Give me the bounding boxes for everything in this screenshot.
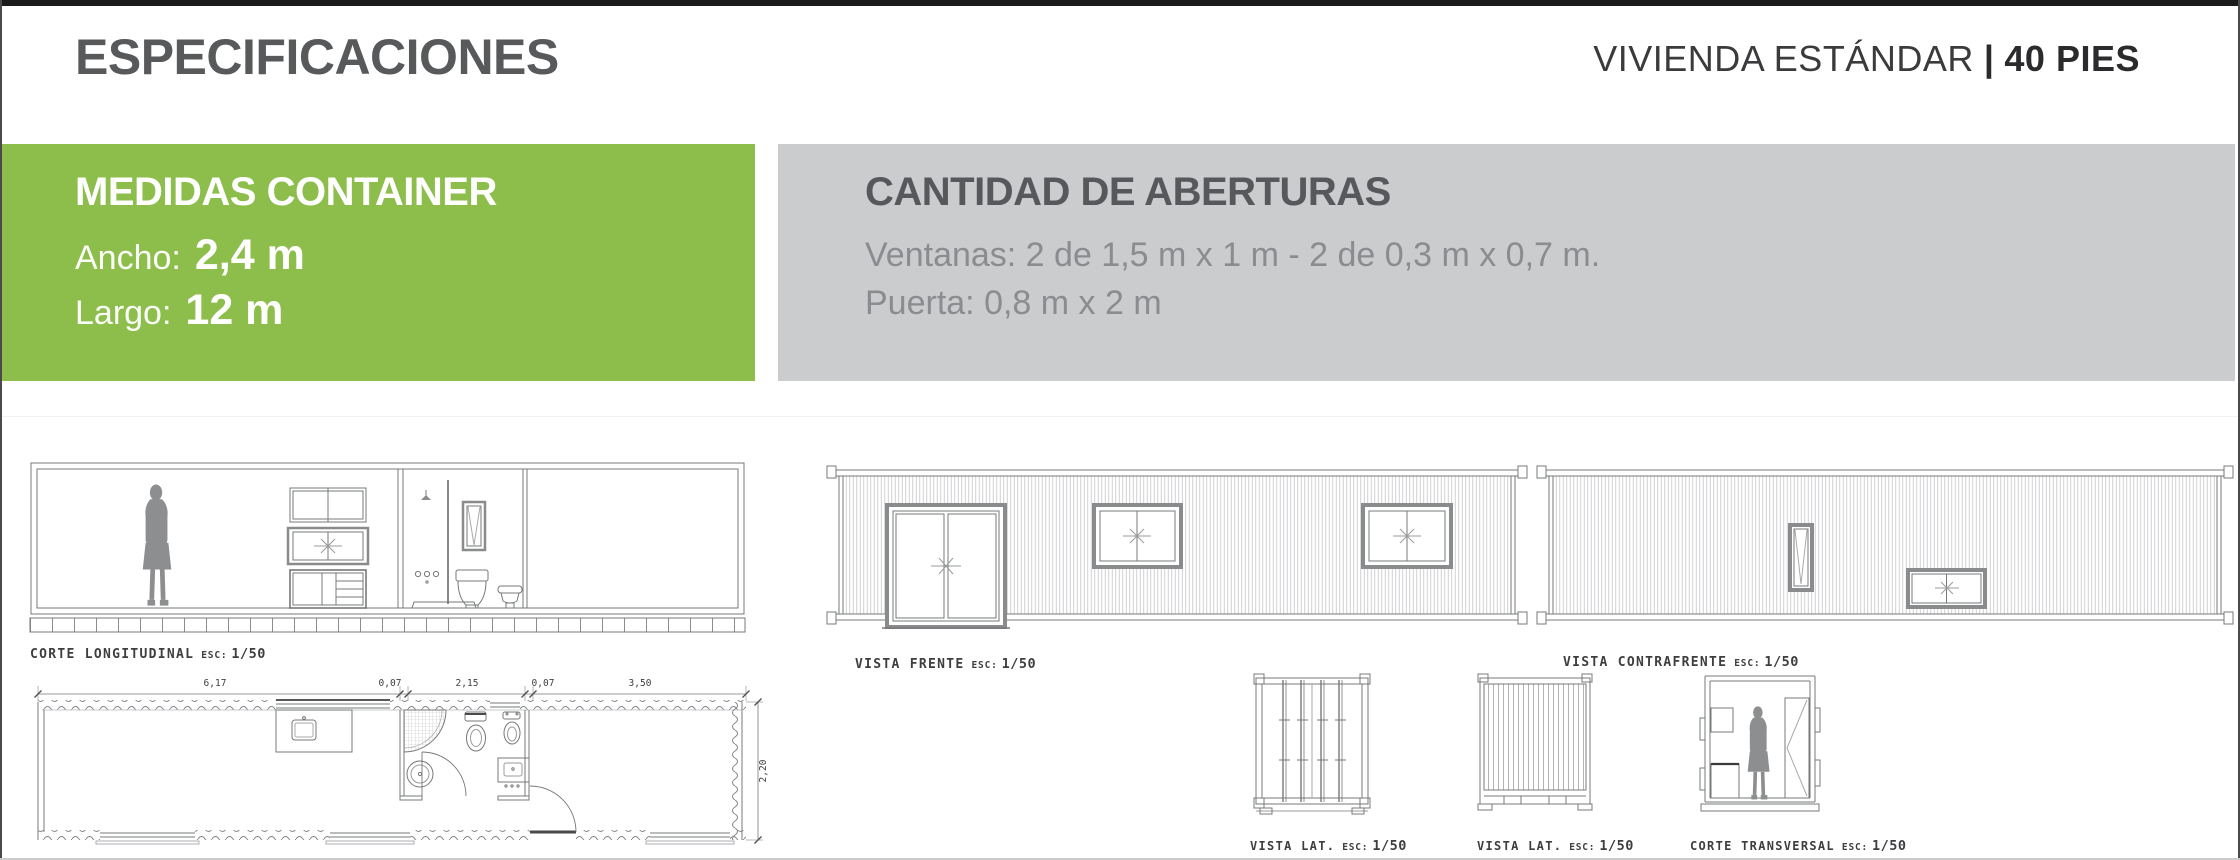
front-window-1 [1094, 505, 1181, 567]
drawings-area-divider [2, 416, 2238, 417]
label-vista-frente: VISTA FRENTEESC:1/50 [855, 656, 1036, 672]
plan-bathroom [400, 710, 529, 800]
medidas-title: MEDIDAS CONTAINER [75, 170, 755, 215]
product-variant-title: VIVIENDA ESTÁNDAR|40 PIES [1593, 38, 2140, 80]
person-figure [1748, 706, 1770, 799]
ancho-value: 2,4 m [195, 231, 305, 280]
label-vista-lat-1: VISTA LAT.ESC:1/50 [1250, 838, 1407, 854]
largo-value: 12 m [185, 286, 283, 335]
plan-top-dimensions: 6,17 0,07 2,15 0,07 3,50 [35, 678, 750, 701]
front-window-2 [1363, 505, 1451, 567]
svg-text:0,07: 0,07 [532, 678, 555, 689]
largo-label: Largo: [75, 294, 171, 333]
ventanas-spec: Ventanas: 2 de 1,5 m x 1 m - 2 de 0,3 m … [865, 231, 2235, 279]
washing-machine [407, 761, 433, 787]
plan-toilet [465, 712, 486, 751]
vista-lateral-corrugated-drawing [1476, 672, 1594, 818]
vista-lateral-doors-drawing [1252, 672, 1372, 818]
svg-text:0,07: 0,07 [379, 678, 402, 689]
label-corte-longitudinal: CORTE LONGITUDINALESC:1/50 [30, 646, 266, 662]
svg-text:3,50: 3,50 [629, 678, 652, 689]
shower-pan [404, 710, 446, 752]
plan-vanity [498, 758, 529, 787]
upper-cabinet [1711, 708, 1733, 732]
floor-plan-drawing: 6,17 0,07 2,15 0,07 3,50 [30, 674, 770, 856]
shower-knobs [415, 571, 438, 583]
bidet-section [498, 586, 522, 608]
panel-aberturas: CANTIDAD DE ABERTURAS Ventanas: 2 de 1,5… [778, 144, 2235, 381]
bathroom-window-section [463, 502, 485, 550]
svg-text:6,17: 6,17 [204, 678, 227, 689]
panel-medidas-container: MEDIDAS CONTAINER Ancho: 2,4 m Largo: 12… [2, 144, 755, 381]
page-border-left [0, 0, 2, 860]
aberturas-title: CANTIDAD DE ABERTURAS [865, 170, 2235, 215]
variant-size: 40 PIES [2004, 38, 2140, 79]
person-figure [143, 484, 172, 605]
puerta-spec: Puerta: 0,8 m x 2 m [865, 279, 2235, 327]
plan-outer-walls [38, 700, 746, 844]
variant-divider: | [1974, 38, 2005, 79]
small-vertical-window [1790, 525, 1812, 590]
label-corte-transversal: CORTE TRANSVERSALESC:1/50 [1690, 838, 1907, 854]
vista-contrafrente-drawing [1537, 466, 2233, 632]
medidas-row-largo: Largo: 12 m [75, 286, 755, 335]
door-elevation [1785, 698, 1809, 798]
kitchen-base-cabinet [290, 570, 366, 608]
svg-text:2,20: 2,20 [758, 759, 769, 782]
front-door [882, 505, 1010, 628]
corte-longitudinal-drawing [30, 462, 745, 640]
page-border-top [0, 0, 2240, 6]
plan-right-dimension: 2,20 [746, 699, 769, 844]
spec-sheet-page: ESPECIFICACIONES VIVIENDA ESTÁNDAR|40 PI… [0, 0, 2240, 860]
corte-transversal-drawing [1697, 668, 1823, 818]
plan-bidet [503, 712, 520, 744]
medidas-row-ancho: Ancho: 2,4 m [75, 231, 755, 280]
shower-head-icon [421, 490, 431, 500]
kitchen-window-section [288, 528, 368, 564]
ancho-label: Ancho: [75, 239, 181, 278]
plan-entry-door [530, 786, 576, 832]
label-vista-lat-2: VISTA LAT.ESC:1/50 [1477, 838, 1634, 854]
lower-counter [1711, 764, 1739, 798]
rear-window [1908, 570, 1985, 607]
variant-name: VIVIENDA ESTÁNDAR [1593, 38, 1974, 79]
plan-kitchen-counter [276, 710, 352, 752]
svg-text:2,15: 2,15 [456, 678, 479, 689]
page-title: ESPECIFICACIONES [75, 28, 559, 86]
vista-frente-drawing [827, 466, 1527, 632]
kitchen-upper-cabinet [290, 488, 366, 522]
